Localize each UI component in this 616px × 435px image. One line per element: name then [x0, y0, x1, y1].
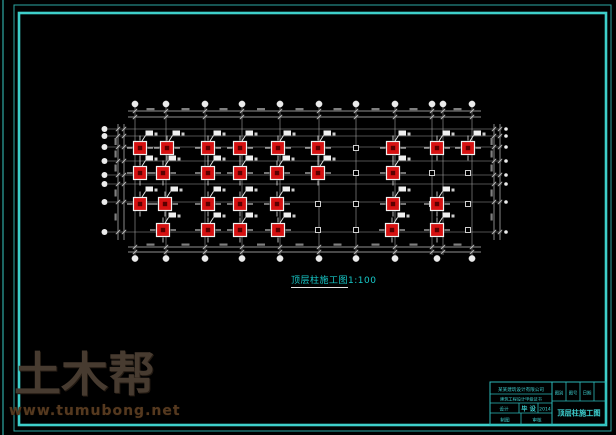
svg-text:审核: 审核 — [532, 417, 542, 424]
column — [455, 131, 486, 161]
svg-text:日期: 日期 — [583, 391, 592, 397]
column-tag — [142, 187, 158, 198]
svg-text:建筑工程设计甲级证书: 建筑工程设计甲级证书 — [500, 396, 542, 403]
column — [379, 213, 410, 243]
svg-text:毕 设: 毕 设 — [521, 405, 536, 413]
column-tag — [210, 187, 226, 198]
axis-bubbles — [102, 101, 508, 262]
column — [424, 187, 455, 217]
column — [264, 156, 295, 186]
column-tag — [439, 213, 455, 224]
svg-text:某某建筑设计有限公司: 某某建筑设计有限公司 — [498, 386, 544, 393]
watermark-url: www.tumubong.net — [9, 403, 181, 419]
column-tag — [167, 187, 183, 198]
column — [127, 156, 158, 186]
watermark-logo: 土木帮 — [14, 350, 155, 402]
svg-text:图号: 图号 — [569, 391, 578, 397]
column-tag — [242, 213, 258, 224]
column — [195, 156, 226, 186]
caption-scale: 1:100 — [348, 276, 376, 286]
column-tag — [439, 187, 455, 198]
cad-drawing-sheet: 某某建筑设计有限公司建筑工程设计甲级证书设计毕 设2014制图审核图别图号日期顶… — [0, 0, 616, 435]
column — [150, 213, 181, 243]
column — [195, 187, 226, 217]
column-tag — [280, 213, 296, 224]
column-tag — [394, 213, 410, 224]
column-tag — [395, 187, 411, 198]
column — [424, 213, 455, 243]
column-tag — [210, 213, 226, 224]
svg-text:顶层柱施工图: 顶层柱施工图 — [557, 409, 600, 418]
column — [424, 131, 455, 161]
svg-text:2014: 2014 — [539, 407, 551, 413]
svg-text:图别: 图别 — [555, 390, 564, 397]
column — [264, 187, 295, 217]
title-block: 某某建筑设计有限公司建筑工程设计甲级证书设计毕 设2014制图审核图别图号日期顶… — [490, 382, 606, 425]
svg-text:设计: 设计 — [499, 406, 509, 413]
column-tag — [242, 187, 258, 198]
caption-title: 顶层柱施工图 — [291, 276, 348, 288]
svg-text:制图: 制图 — [500, 417, 510, 424]
column-tag — [165, 213, 181, 224]
column — [305, 156, 336, 186]
column — [127, 187, 158, 217]
drawing-caption: 顶层柱施工图1:100 — [291, 276, 376, 287]
column-tag — [279, 187, 295, 198]
column — [195, 213, 226, 243]
